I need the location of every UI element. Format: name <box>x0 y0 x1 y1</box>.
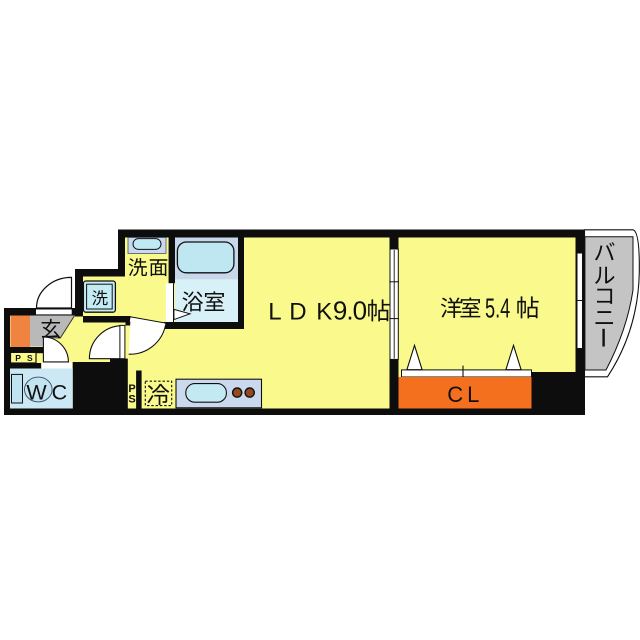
svg-text:K: K <box>316 299 332 326</box>
svg-text:PS: PS <box>15 353 39 363</box>
svg-text:L: L <box>268 299 281 326</box>
svg-text:9.0: 9.0 <box>333 296 367 326</box>
svg-text:S: S <box>128 393 135 405</box>
svg-text:D: D <box>289 299 306 326</box>
svg-text:WC: WC <box>26 381 72 405</box>
svg-text:CL: CL <box>447 382 483 407</box>
svg-text:5.4: 5.4 <box>485 293 510 324</box>
